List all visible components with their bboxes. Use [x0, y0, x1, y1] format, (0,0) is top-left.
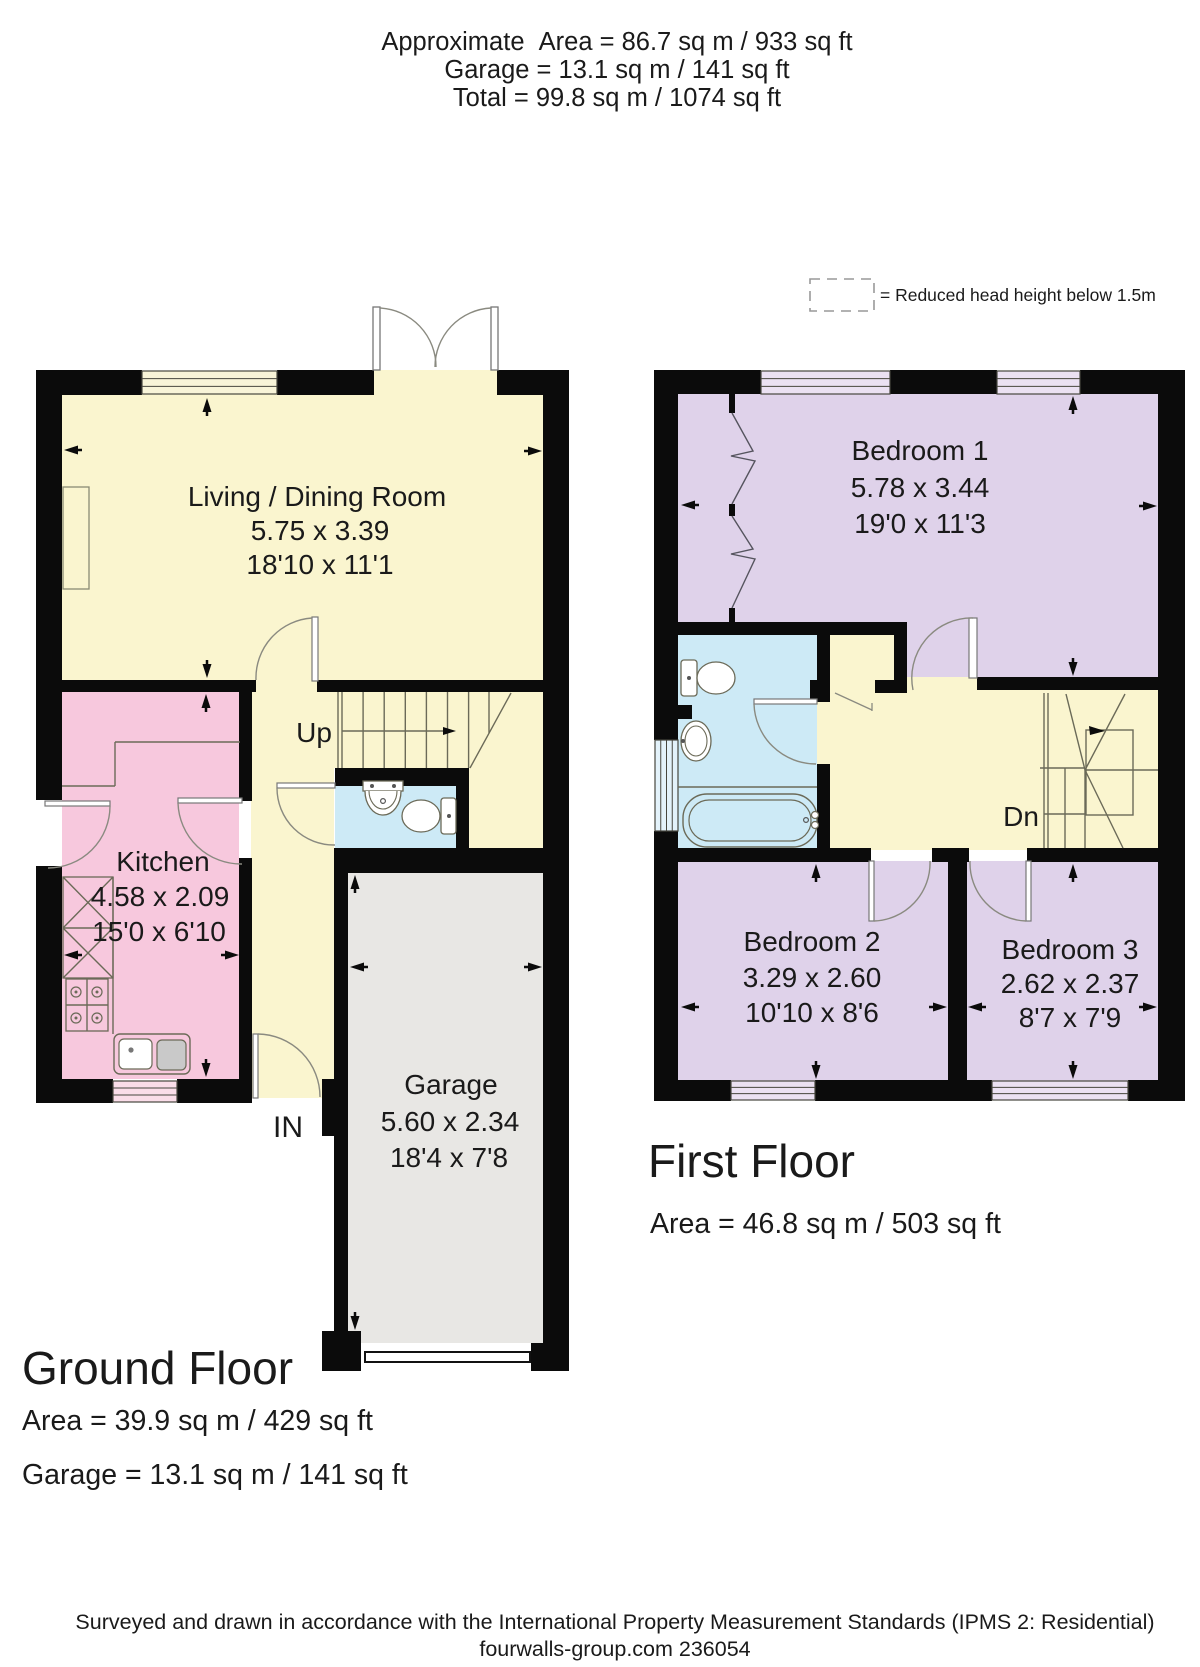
svg-text:Garage = 13.1 sq m / 141 sq ft: Garage = 13.1 sq m / 141 sq ft — [22, 1459, 408, 1491]
svg-text:Bedroom 3: Bedroom 3 — [1002, 934, 1139, 965]
svg-text:5.75 x 3.39: 5.75 x 3.39 — [251, 515, 390, 546]
svg-text:Total = 99.8 sq m / 1074 sq ft: Total = 99.8 sq m / 1074 sq ft — [453, 84, 781, 112]
svg-text:= Reduced head height below 1.: = Reduced head height below 1.5m — [880, 285, 1156, 305]
svg-text:15'0 x 6'10: 15'0 x 6'10 — [92, 916, 226, 947]
svg-text:Dn: Dn — [1003, 801, 1039, 832]
svg-text:5.78 x 3.44: 5.78 x 3.44 — [851, 472, 990, 503]
svg-text:Living / Dining Room: Living / Dining Room — [188, 481, 446, 512]
svg-text:Area = 39.9 sq m / 429 sq ft: Area = 39.9 sq m / 429 sq ft — [22, 1405, 373, 1437]
svg-text:Ground Floor: Ground Floor — [22, 1342, 293, 1394]
svg-text:Garage = 13.1 sq m / 141 sq ft: Garage = 13.1 sq m / 141 sq ft — [444, 56, 789, 84]
svg-text:Approximate Area = 86.7 sq m: Approximate Area = 86.7 sq m / 933 sq ft — [381, 28, 852, 56]
svg-text:IN: IN — [273, 1111, 303, 1144]
svg-text:fourwalls-group.com 236054: fourwalls-group.com 236054 — [479, 1637, 750, 1661]
svg-text:3.29 x 2.60: 3.29 x 2.60 — [743, 962, 882, 993]
svg-text:4.58 x 2.09: 4.58 x 2.09 — [91, 881, 230, 912]
svg-text:8'7 x 7'9: 8'7 x 7'9 — [1019, 1002, 1122, 1033]
svg-text:18'10 x 11'1: 18'10 x 11'1 — [246, 549, 393, 580]
svg-text:Bedroom 1: Bedroom 1 — [852, 435, 989, 466]
svg-text:10'10 x 8'6: 10'10 x 8'6 — [745, 997, 879, 1028]
svg-text:First Floor: First Floor — [648, 1135, 855, 1187]
svg-text:18'4 x 7'8: 18'4 x 7'8 — [390, 1142, 508, 1173]
svg-text:Garage: Garage — [404, 1069, 497, 1100]
svg-text:2.62 x 2.37: 2.62 x 2.37 — [1001, 968, 1140, 999]
svg-text:Surveyed and drawn in accordan: Surveyed and drawn in accordance with th… — [75, 1610, 1154, 1634]
svg-text:5.60 x 2.34: 5.60 x 2.34 — [381, 1106, 520, 1137]
svg-text:Area = 46.8 sq m / 503 sq ft: Area = 46.8 sq m / 503 sq ft — [650, 1208, 1001, 1240]
svg-text:19'0 x 11'3: 19'0 x 11'3 — [854, 508, 986, 539]
svg-text:Bedroom 2: Bedroom 2 — [744, 926, 881, 957]
svg-text:Kitchen: Kitchen — [116, 846, 209, 877]
svg-text:Up: Up — [296, 717, 332, 748]
